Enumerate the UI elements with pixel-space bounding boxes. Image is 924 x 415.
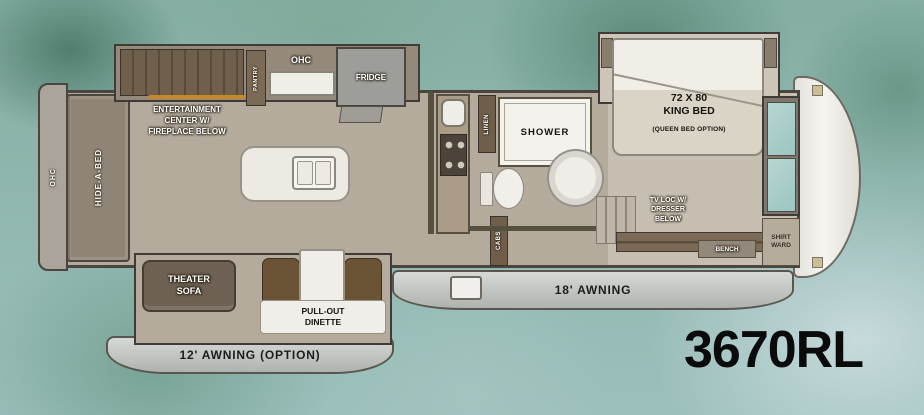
wardrobe-mirror-top	[767, 102, 796, 156]
nightstand-right	[764, 38, 777, 68]
toilet-icon	[480, 172, 493, 206]
fridge-lower-cabinet	[339, 106, 384, 123]
fridge: FRIDGE	[336, 47, 406, 107]
hide-a-bed-sofa: HIDE-A-BED	[66, 94, 130, 262]
range-icon	[440, 134, 467, 176]
pantry-cabinet: PANTRY	[246, 50, 266, 106]
awning-18ft-label: 18' AWNING	[555, 283, 631, 297]
entertainment-center-label: ENTERTAINMENT CENTER W/ FIREPLACE BELOW	[124, 105, 250, 137]
cap-hinge-bottom	[812, 257, 823, 268]
hide-a-bed-label: HIDE-A-BED	[94, 149, 103, 206]
toilet-bowl-icon	[493, 168, 524, 209]
cap-hinge-top	[812, 85, 823, 96]
linen-cabinet: LINEN	[478, 95, 496, 153]
awning-12ft-label: 12' AWNING (OPTION)	[180, 348, 321, 362]
shower-label: SHOWER	[521, 127, 570, 138]
linen-label: LINEN	[484, 114, 490, 135]
front-cap	[793, 76, 861, 278]
floorplan-scene: 12' AWNING (OPTION) 18' AWNING OHC HIDE-…	[0, 0, 924, 415]
dresser-label: TV LOC W/ DRESSER BELOW	[620, 196, 716, 224]
shirt-wardrobe: SHIRT WARD	[762, 218, 800, 266]
fireplace-glow	[148, 95, 252, 99]
wardrobe-mirror-bottom	[767, 158, 796, 212]
dinette-label-box: PULL-OUT DINETTE	[260, 300, 386, 334]
entertainment-cabinet	[120, 49, 244, 96]
entry-step	[450, 276, 482, 300]
bench: BENCH	[698, 240, 756, 258]
front-wardrobe	[762, 96, 800, 216]
shirt-ward-label: SHIRT WARD	[771, 234, 791, 251]
kitchen-sink-icon	[441, 99, 466, 127]
pantry-label: PANTRY	[253, 66, 259, 91]
kitchen-hutch	[269, 71, 335, 96]
rear-ohc-label: OHC	[50, 168, 57, 187]
kitchen-wall	[428, 92, 434, 234]
king-bed-option-label: (QUEEN BED OPTION)	[610, 126, 768, 133]
rear-overhead-cabinet: OHC	[38, 83, 68, 271]
cabs-label: CABS	[496, 231, 502, 250]
island-sink-icon	[292, 156, 336, 190]
kitchen-ohc-label: OHC	[268, 55, 334, 65]
dinette-label: PULL-OUT DINETTE	[302, 306, 345, 328]
model-number: 3670RL	[684, 320, 863, 380]
fridge-label: FRIDGE	[356, 73, 386, 82]
bathroom-wall	[470, 226, 612, 231]
bench-label: BENCH	[715, 246, 738, 253]
hall-cabinet: CABS	[490, 216, 508, 266]
theater-sofa: THEATER SOFA	[142, 260, 236, 312]
theater-sofa-label: THEATER SOFA	[168, 274, 210, 297]
king-bed-label: 72 X 80 KING BED	[616, 92, 762, 118]
